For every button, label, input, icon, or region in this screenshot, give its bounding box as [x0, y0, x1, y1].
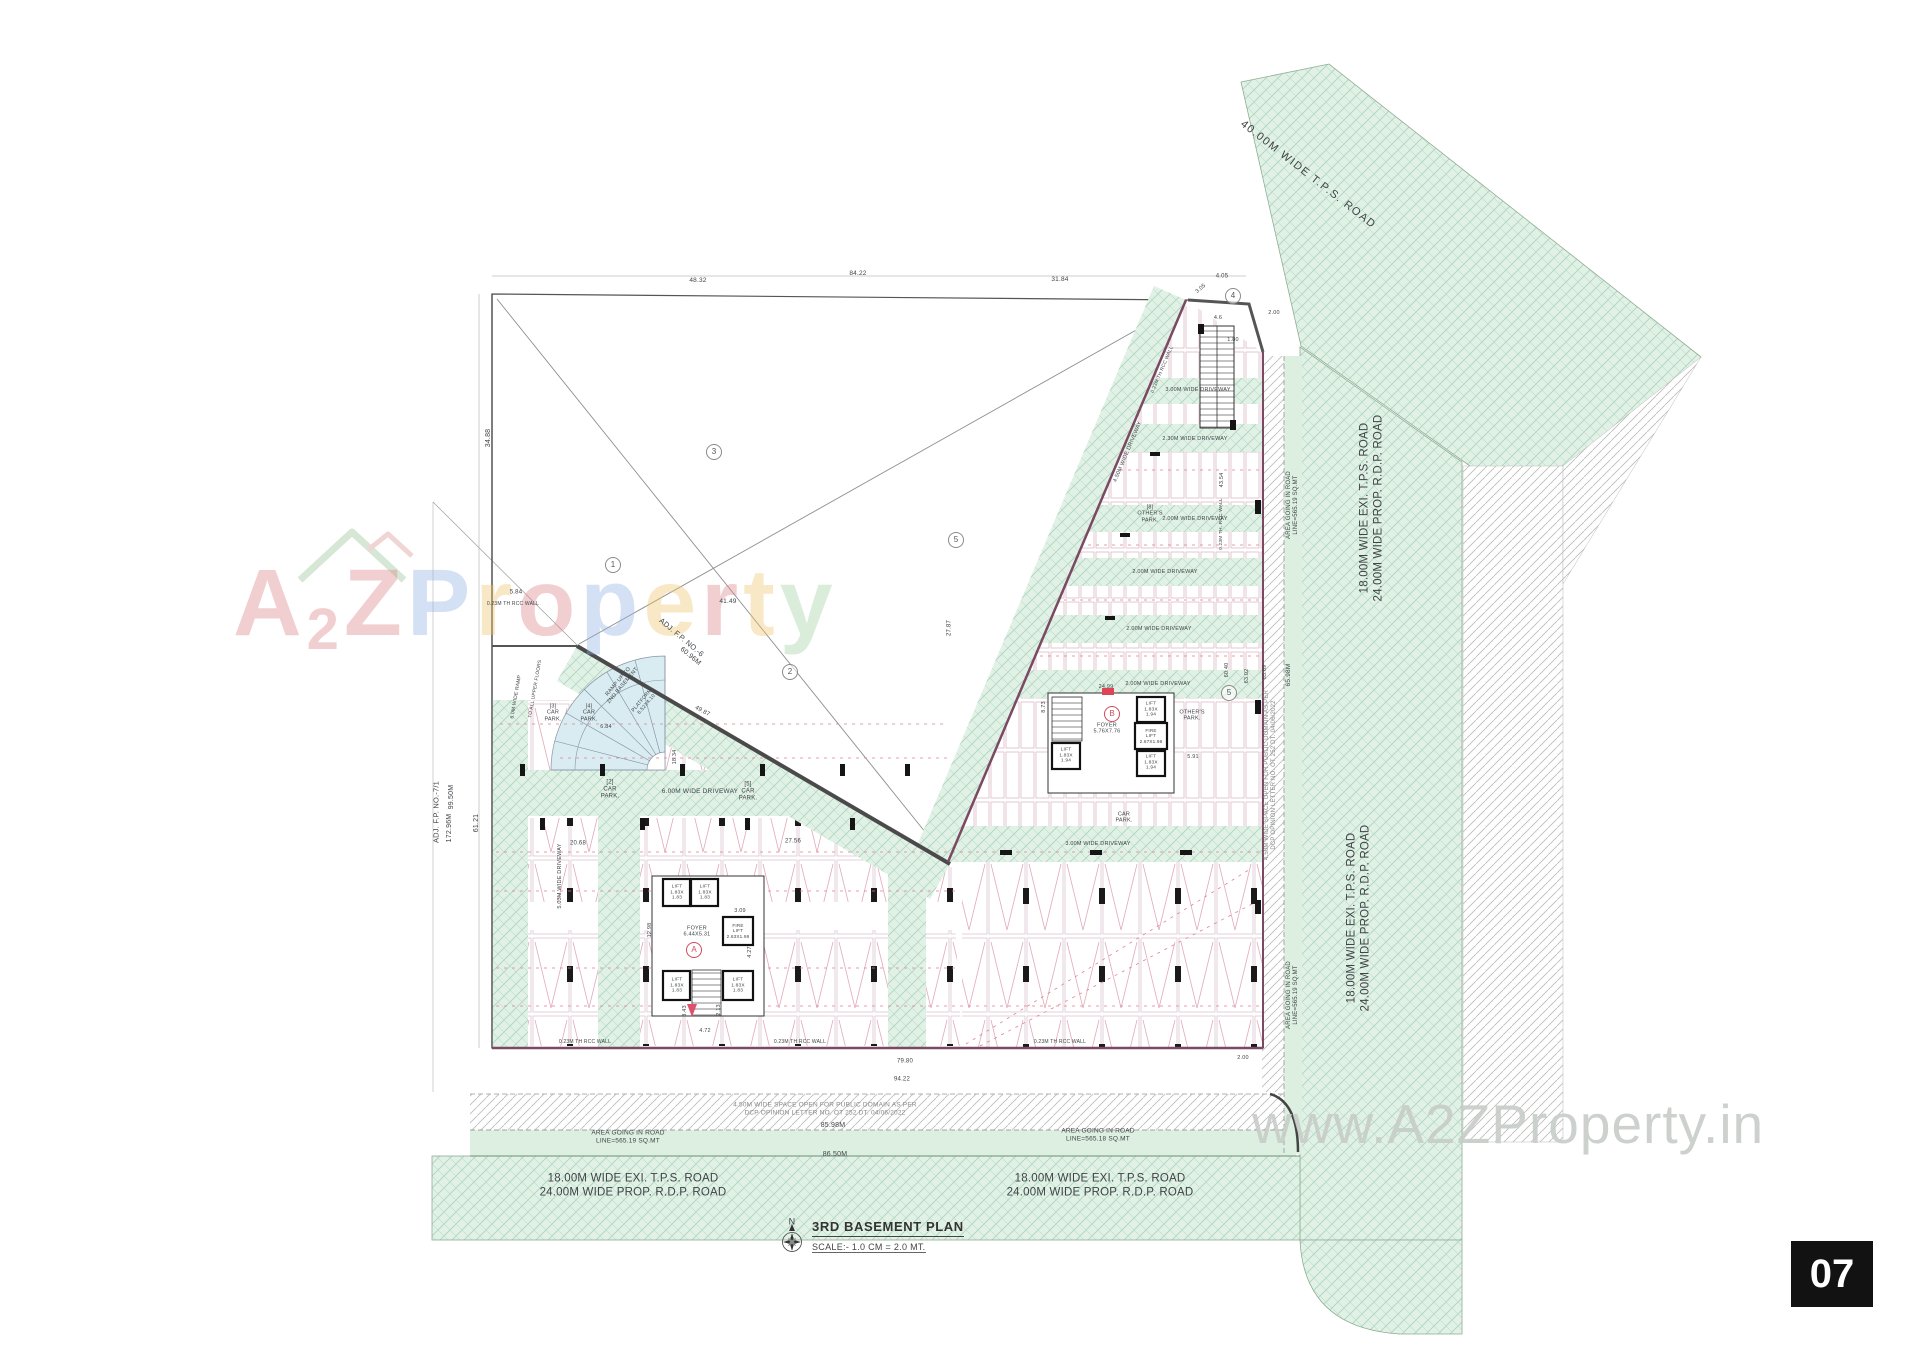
dim-180: 1.80 — [1227, 337, 1239, 343]
area-going-road-left: AREA GOING IN ROAD LINE=565.19 SQ.MT — [591, 1129, 664, 1144]
lift-b3: LIFT 1.83X 1.94 — [1144, 755, 1158, 772]
brand-letter: P — [407, 550, 475, 656]
url-watermark: www.A2ZProperty.in — [1252, 1092, 1764, 1156]
road-label-right-lower: 18.00M WIDE EXI. T.P.S. ROAD 24.00M WIDE… — [1345, 825, 1372, 1012]
driveway-200m-2: 2.00M WIDE DRIVEWAY — [1132, 569, 1197, 575]
wall-note: 0.23M TH RCC WALL — [487, 602, 539, 608]
title-block: 3RD BASEMENT PLAN SCALE:- 1.0 CM = 2.0 M… — [812, 1218, 964, 1255]
driveway-503m: 5.03M WIDE DRIVEWAY — [557, 843, 563, 908]
dim-200b: 2.00 — [1237, 1055, 1249, 1061]
wall-note: 0.23M TH RCC WALL — [559, 1040, 611, 1046]
dim-3184: 31.84 — [1051, 276, 1068, 284]
wall-note: 0.23M TH RCC WALL — [1034, 1040, 1086, 1046]
lift-a3: LIFT 1.83X 1.83 — [670, 978, 684, 995]
area-going-road-side-upper: AREA GOING IN ROAD LINE=565.19 SQ.MT — [1286, 471, 1300, 539]
stairs-b — [1052, 697, 1082, 741]
dim-2499: 24.99 — [1099, 684, 1114, 690]
dim-6121: 61.21 — [473, 814, 481, 833]
lift-a4: LIFT 1.83X 1.83 — [731, 978, 745, 995]
driveway-600m: 6.00M WIDE DRIVEWAY — [662, 788, 738, 796]
dim-3488: 34.88 — [485, 429, 493, 448]
carpark-5: [5] CAR PARK. — [739, 781, 758, 802]
plan-title: 3RD BASEMENT PLAN — [812, 1219, 964, 1237]
dim-1834: 18.34 — [672, 750, 678, 765]
wall-note: 0.23M TH RCC WALL — [774, 1040, 826, 1046]
dim-472: 4.72 — [699, 1028, 711, 1034]
dim-2756: 27.56 — [785, 838, 801, 845]
foyer-b: FOYER 5.76X7.76 — [1094, 723, 1121, 736]
firelift-a: FIRE LIFT 2.63X1.98 — [727, 923, 750, 939]
foyer-a: FOYER 6.44X5.31 — [684, 926, 711, 939]
lift-a1: LIFT 1.83X 1.83 — [670, 885, 684, 902]
dim-591: 5.91 — [1187, 754, 1199, 760]
dim-584: 5.84 — [510, 589, 522, 596]
dim-8598: 85.98M — [821, 1122, 846, 1130]
brand-letter: A — [233, 550, 307, 656]
carpark-3: [3] CAR PARK. — [544, 703, 561, 722]
driveway-300m-top: 3.00M WIDE DRIVEWAY — [1165, 387, 1230, 393]
dim-8422: 84.22 — [849, 270, 866, 278]
dim-6302: 63.02 — [1244, 669, 1250, 684]
wall-note: 0.23M TH. RCC WALL — [1219, 498, 1225, 550]
dim-6569: 65.69 — [1262, 665, 1268, 680]
dim-6040: 60.40 — [1224, 663, 1230, 678]
lift-a2: LIFT 1.83X 1.83 — [698, 885, 712, 902]
basement-plan-page: A2ZProperty www.A2ZProperty.in 3RD BASEM… — [0, 0, 1920, 1358]
marker-A: A — [686, 942, 702, 958]
dim-405: 4.05 — [1216, 273, 1228, 280]
dim-213: 2.13 — [716, 1004, 722, 1016]
dim-684: 6.84 — [600, 724, 612, 730]
dim-4354: 43.54 — [1219, 473, 1225, 488]
dim-6598m: 65.98M — [1285, 664, 1293, 687]
dim-200a: 2.00 — [1268, 310, 1280, 316]
dim-427: 4.27 — [747, 946, 753, 958]
road-label-bottom-left: 18.00M WIDE EXI. T.P.S. ROAD 24.00M WIDE… — [540, 1172, 727, 1199]
dim-46: 4.6 — [1214, 315, 1222, 321]
area-going-road-side-lower: AREA GOING IN ROAD LINE=565.19 SQ.MT — [1286, 961, 1300, 1029]
brand-letter: y — [780, 550, 838, 656]
dim-7980: 79.80 — [897, 1058, 913, 1065]
brand-letter: 2 — [307, 597, 344, 662]
dim-309: 3.09 — [734, 908, 746, 914]
driveway-200m-3: 2.00M WIDE DRIVEWAY — [1126, 626, 1191, 632]
outer-hatch-strips — [1463, 357, 1701, 1142]
firelift-b: FIRE LIFT 2.67X1.98 — [1140, 728, 1163, 744]
driveway-200m-4: 2.00M WIDE DRIVEWAY — [1125, 681, 1190, 687]
public-strip-bottom: 4.50M WIDE SPACE OPEN FOR PUBLIC DOMAIN … — [733, 1101, 917, 1116]
road-label-right-upper: 18.00M WIDE EXI. T.P.S. ROAD 24.00M WIDE… — [1358, 415, 1385, 602]
dim-873: 8.73 — [1041, 701, 1047, 713]
carpark-4: [4] CAR PARK. — [580, 703, 597, 722]
dim-2068: 20.68 — [570, 840, 586, 847]
area-going-road-right: AREA GOING IN ROAD LINE=565.18 SQ.MT — [1061, 1127, 1134, 1142]
marker-4: 4 — [1225, 288, 1241, 304]
plan-scale: SCALE:- 1.0 CM = 2.0 MT. — [812, 1242, 926, 1253]
road-label-bottom-right: 18.00M WIDE EXI. T.P.S. ROAD 24.00M WIDE… — [1007, 1172, 1194, 1199]
lift-b2: LIFT 1.83X 1.94 — [1144, 702, 1158, 719]
marker-5: 5 — [948, 532, 964, 548]
dim-4149: 41.49 — [719, 598, 736, 606]
dim-4832: 48.32 — [689, 277, 706, 285]
driveway-230m: 2.30M WIDE DRIVEWAY — [1162, 436, 1227, 442]
public-strip-right: 4.50M WIDE SPACE OPEN FOR PUBLIC DOMAIN … — [1264, 690, 1278, 860]
marker-1: 1 — [605, 557, 621, 573]
marker-B: B — [1104, 706, 1120, 722]
carpark-2: [2] CAR PARK. — [601, 779, 620, 800]
page-number-badge: 07 — [1791, 1241, 1873, 1307]
dim-9422: 94.22 — [894, 1076, 910, 1083]
road-corner — [1300, 1240, 1462, 1334]
dim-9950m: 99.50M — [448, 785, 456, 810]
driveway-300m-bottom: 3.00M WIDE DRIVEWAY — [1065, 841, 1130, 847]
brand-letter: Z — [344, 550, 407, 656]
others-park-8: [8] OTHER'S PARK. — [1137, 504, 1162, 523]
dim-343: 3.43 — [682, 1005, 688, 1017]
marker-3: 3 — [706, 444, 722, 460]
driveway-200m-1: 2.00M WIDE DRIVEWAY — [1162, 516, 1227, 522]
adj-fp-71: ADJ. F.P. NO.-7/1 — [433, 781, 442, 843]
dim-2787: 27.87 — [946, 620, 953, 636]
lift-b1: LIFT 1.83X 1.94 — [1059, 748, 1073, 765]
dim-17296m: 172.96M — [446, 814, 454, 843]
carpark-right: CAR PARK. — [1115, 812, 1132, 825]
marker-5: 5 — [1221, 685, 1237, 701]
north-letter: N — [789, 1217, 796, 1228]
marker-2: 2 — [782, 664, 798, 680]
others-park: OTHER'S PARK. — [1179, 710, 1204, 723]
brand-letter: t — [743, 550, 780, 656]
dim-8650: 86.50M — [823, 1151, 848, 1159]
dim-1298: 12.98 — [647, 923, 653, 938]
